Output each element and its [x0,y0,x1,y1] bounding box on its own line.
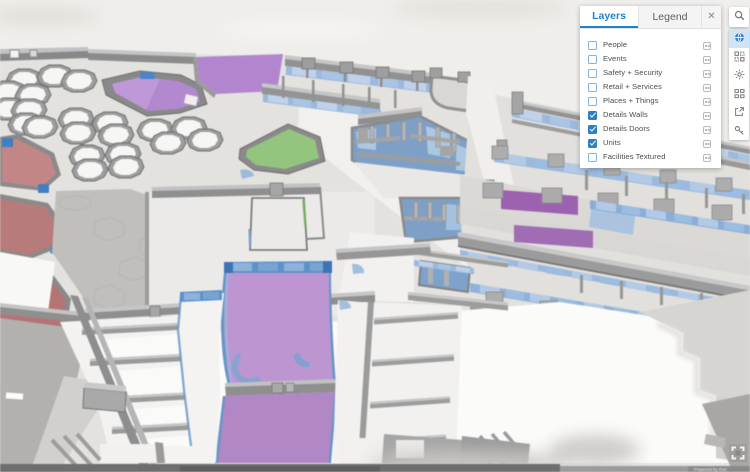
svg-text:Powered by Esri: Powered by Esri [694,467,727,472]
